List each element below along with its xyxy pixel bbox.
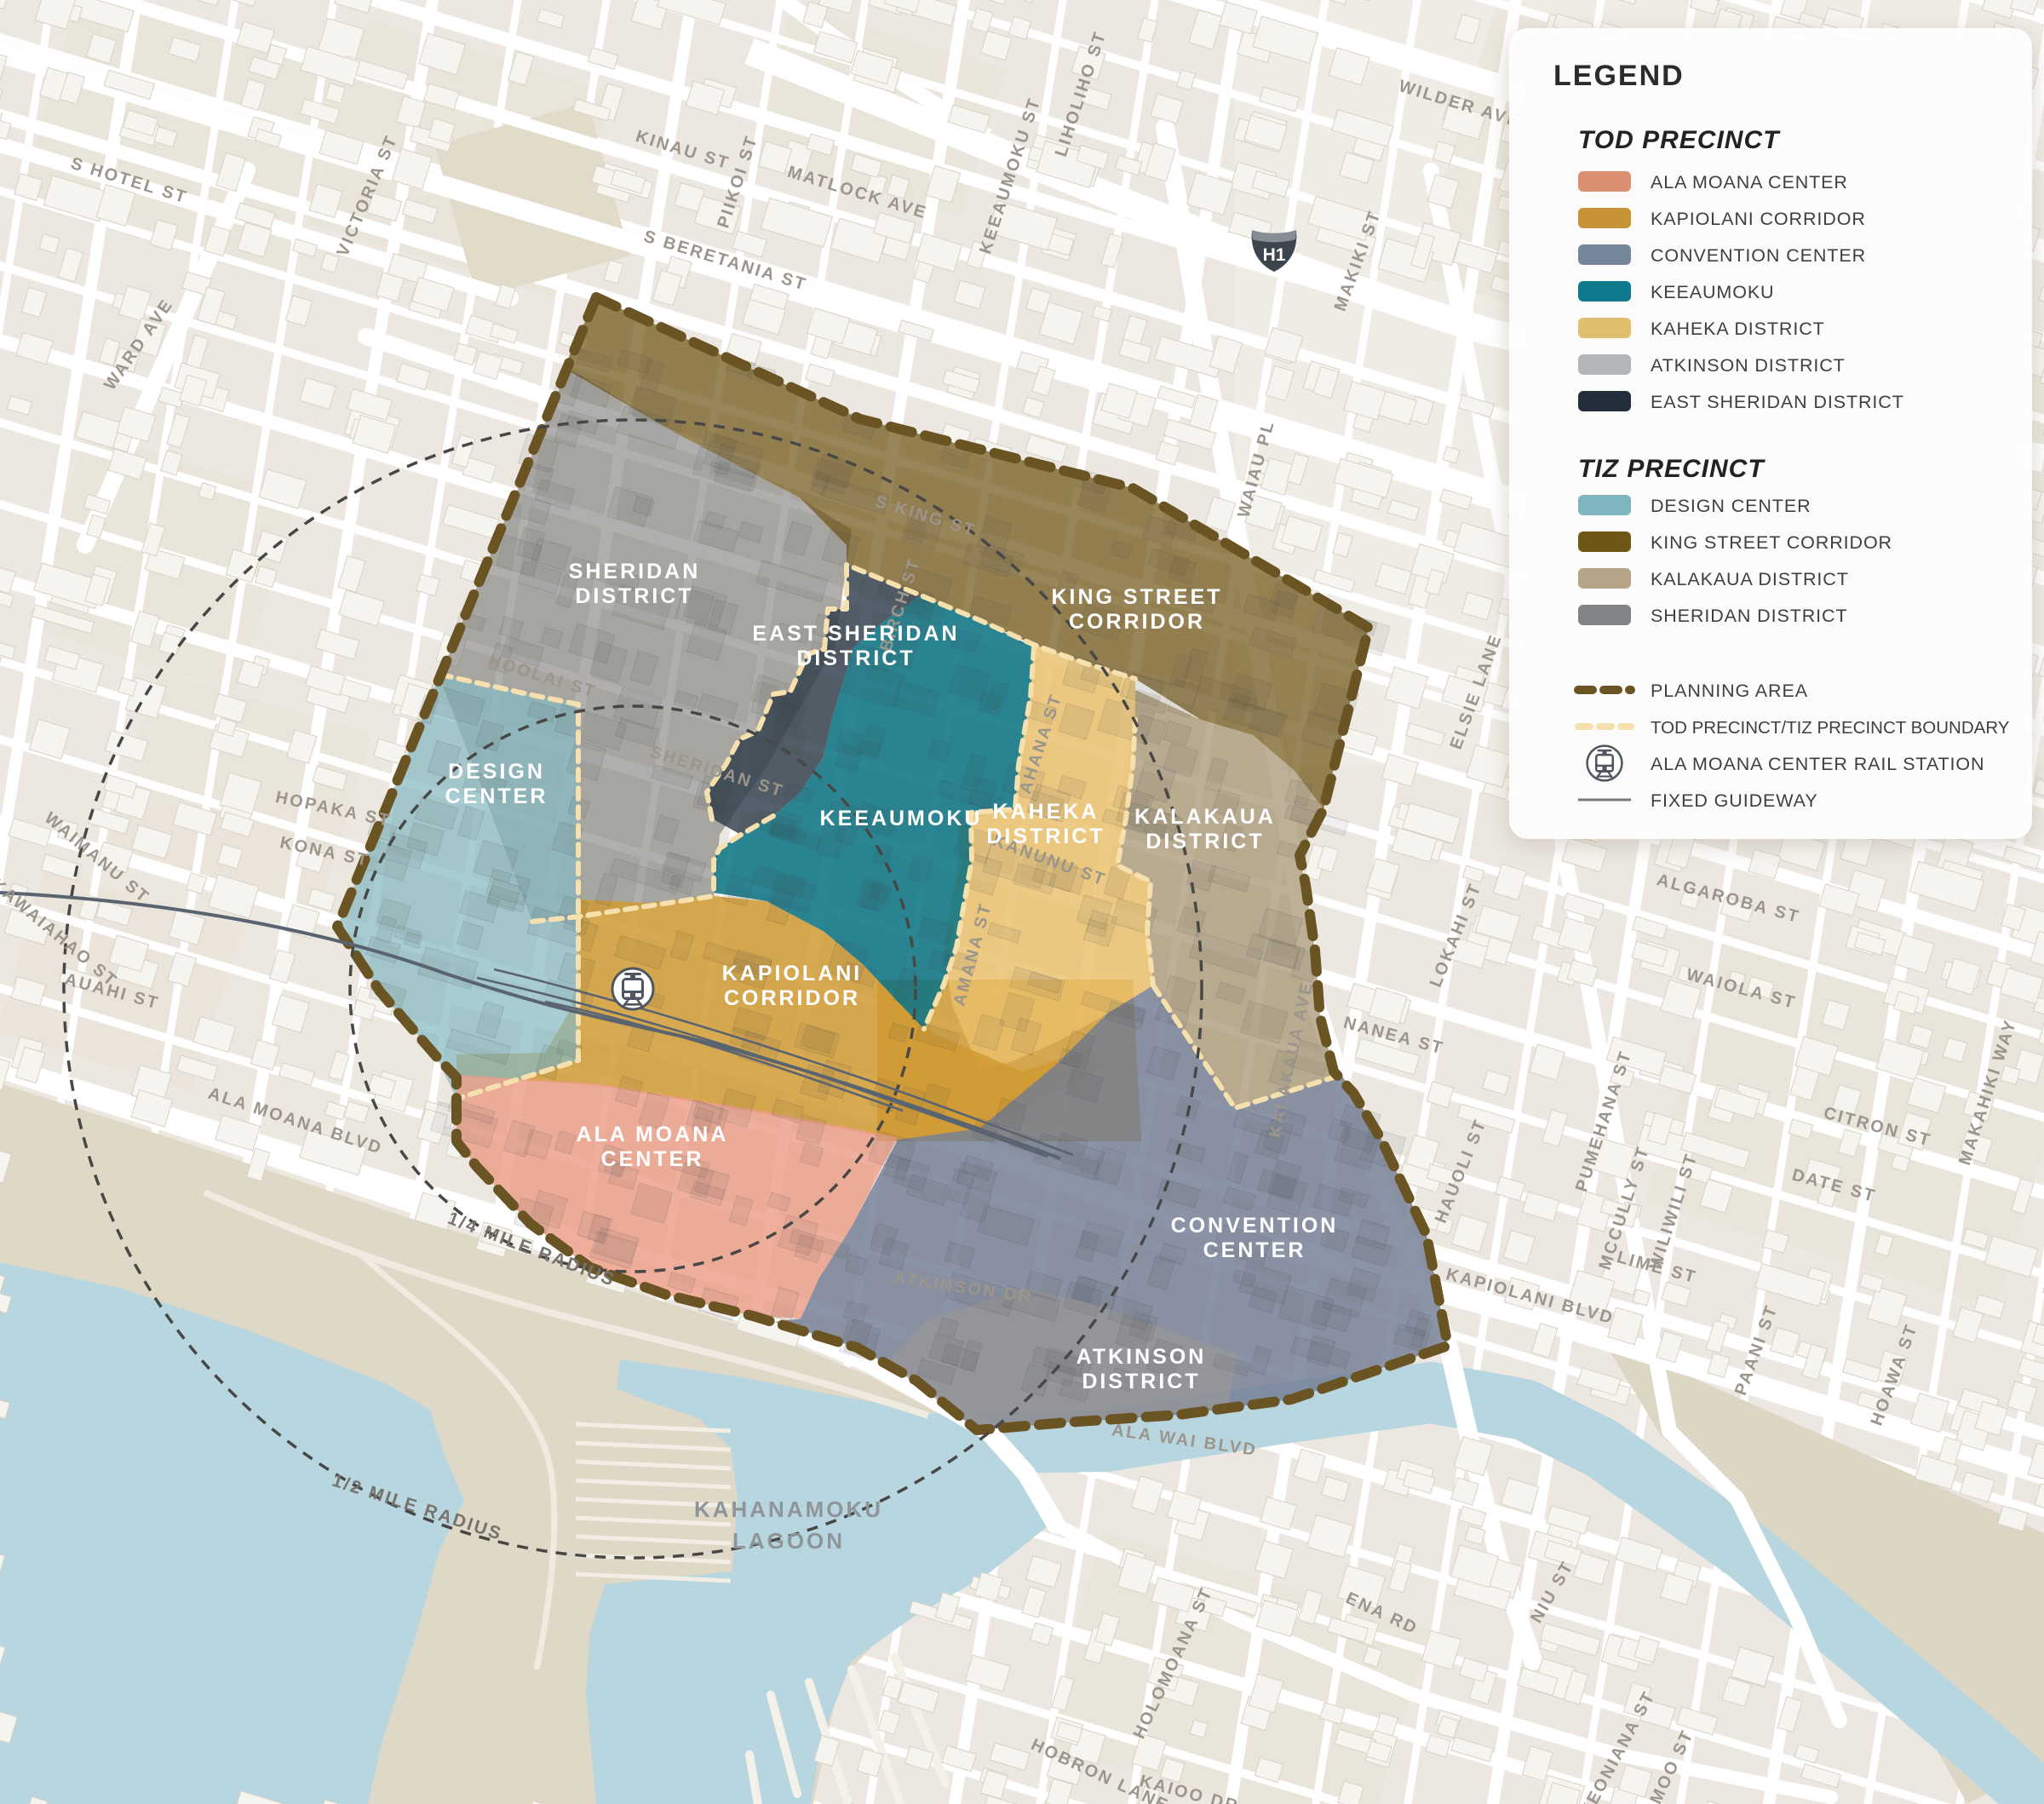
svg-text:DESIGN CENTER: DESIGN CENTER (1651, 496, 1811, 516)
svg-text:CONVENTION: CONVENTION (1171, 1214, 1339, 1238)
svg-text:KAPIOLANI CORRIDOR: KAPIOLANI CORRIDOR (1651, 209, 1866, 229)
svg-text:FIXED GUIDEWAY: FIXED GUIDEWAY (1651, 790, 1818, 811)
svg-text:DESIGN: DESIGN (448, 760, 545, 784)
svg-text:KAPIOLANI: KAPIOLANI (722, 962, 863, 985)
svg-text:PLANNING AREA: PLANNING AREA (1651, 681, 1808, 701)
svg-text:KAHEKA: KAHEKA (993, 800, 1100, 824)
svg-text:TIZ PRECINCT: TIZ PRECINCT (1578, 455, 1766, 483)
svg-text:ATKINSON: ATKINSON (1077, 1345, 1207, 1369)
svg-text:ATKINSON DISTRICT: ATKINSON DISTRICT (1651, 355, 1846, 376)
svg-text:DISTRICT: DISTRICT (1145, 830, 1264, 853)
svg-text:EAST SHERIDAN: EAST SHERIDAN (752, 622, 959, 646)
svg-text:LEGEND: LEGEND (1553, 60, 1685, 92)
svg-text:TOD PRECINCT: TOD PRECINCT (1578, 126, 1781, 154)
svg-text:SHERIDAN DISTRICT: SHERIDAN DISTRICT (1651, 606, 1848, 626)
svg-text:KAHANAMOKU: KAHANAMOKU (694, 1497, 883, 1522)
svg-text:KALAKAUA DISTRICT: KALAKAUA DISTRICT (1651, 569, 1849, 589)
svg-text:KEEAUMOKU: KEEAUMOKU (1651, 282, 1775, 302)
svg-text:KALAKAUA: KALAKAUA (1134, 805, 1276, 829)
svg-text:H1: H1 (1263, 245, 1286, 265)
svg-text:KAHEKA DISTRICT: KAHEKA DISTRICT (1651, 319, 1825, 339)
svg-text:EAST SHERIDAN DISTRICT: EAST SHERIDAN DISTRICT (1651, 392, 1904, 412)
svg-text:DISTRICT: DISTRICT (1082, 1370, 1200, 1393)
svg-text:CONVENTION CENTER: CONVENTION CENTER (1651, 245, 1866, 266)
svg-text:TOD PRECINCT/TIZ PRECINCT BOUN: TOD PRECINCT/TIZ PRECINCT BOUNDARY (1651, 718, 2010, 738)
svg-text:CENTER: CENTER (601, 1147, 704, 1171)
svg-text:SHERIDAN: SHERIDAN (569, 560, 701, 583)
svg-text:CORRIDOR: CORRIDOR (1069, 610, 1205, 634)
svg-text:ALA MOANA CENTER: ALA MOANA CENTER (1651, 172, 1848, 192)
svg-text:KING STREET CORRIDOR: KING STREET CORRIDOR (1651, 532, 1892, 553)
svg-text:ALA MOANA CENTER RAIL STATION: ALA MOANA CENTER RAIL STATION (1651, 754, 1984, 774)
svg-text:LAGOON: LAGOON (732, 1528, 845, 1554)
svg-text:CENTER: CENTER (1203, 1238, 1306, 1262)
svg-text:KING STREET: KING STREET (1051, 585, 1222, 609)
svg-text:DISTRICT: DISTRICT (796, 646, 915, 670)
svg-text:KEEAUMOKU: KEEAUMOKU (820, 807, 983, 830)
svg-text:CENTER: CENTER (445, 784, 548, 808)
svg-text:DISTRICT: DISTRICT (986, 824, 1105, 848)
svg-text:CORRIDOR: CORRIDOR (724, 986, 860, 1010)
svg-text:DISTRICT: DISTRICT (575, 584, 693, 608)
svg-text:ALA MOANA: ALA MOANA (577, 1123, 729, 1146)
